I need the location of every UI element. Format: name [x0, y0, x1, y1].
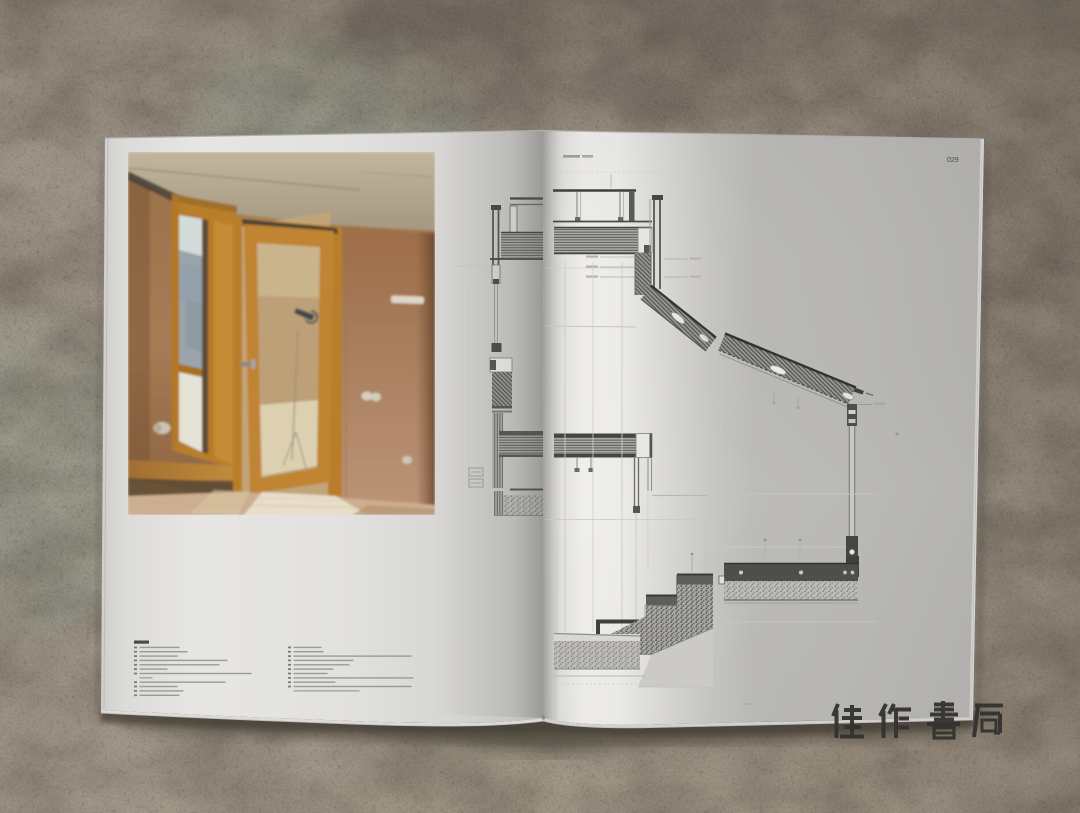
- svg-text:029: 029: [947, 157, 959, 164]
